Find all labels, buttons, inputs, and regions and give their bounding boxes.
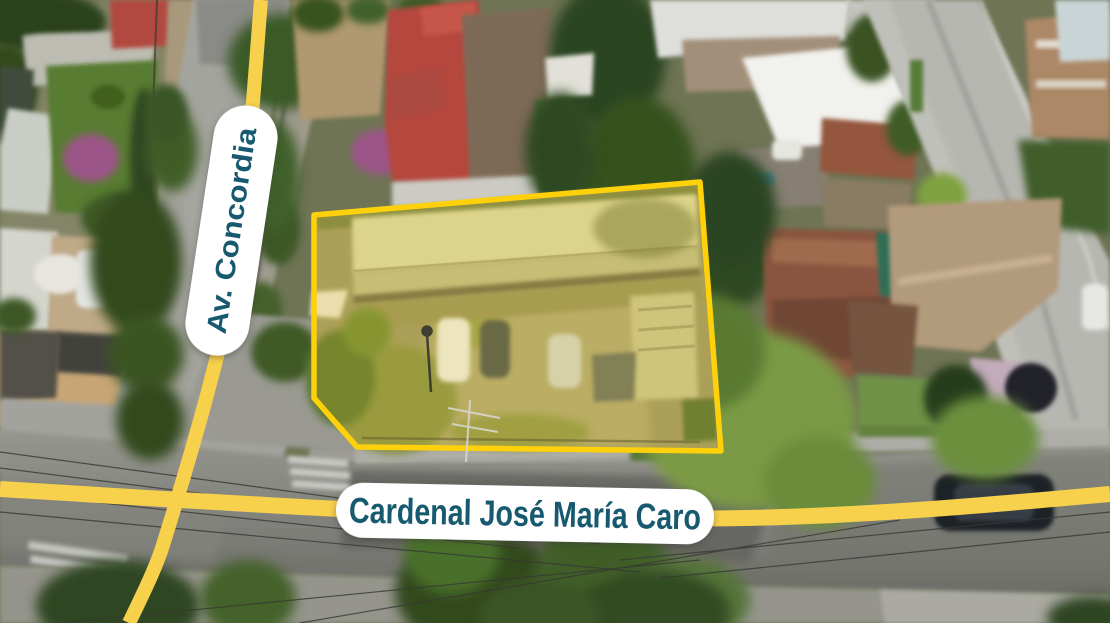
- svg-text:Cardenal José María Caro: Cardenal José María Caro: [349, 490, 702, 538]
